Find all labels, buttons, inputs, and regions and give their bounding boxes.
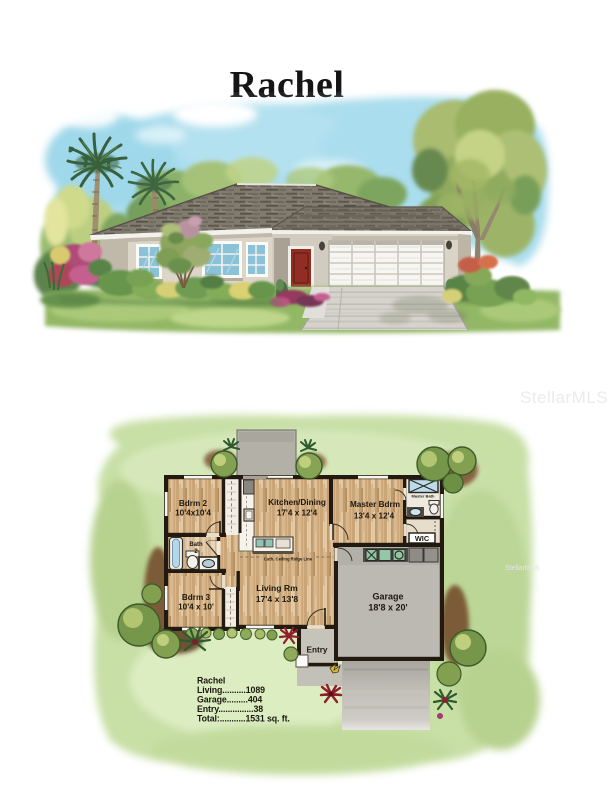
- svg-text:Entry...............38: Entry...............38: [197, 704, 263, 714]
- svg-text:Master Bath: Master Bath: [412, 494, 435, 499]
- svg-text:StellarMLS: StellarMLS: [520, 388, 608, 407]
- svg-text:Master Bdrm: Master Bdrm: [350, 500, 400, 509]
- svg-text:Living..........1089: Living..........1089: [197, 685, 265, 695]
- svg-text:10'4x10'4: 10'4x10'4: [175, 509, 211, 518]
- svg-text:Total:...........1531 sq. ft.: Total:...........1531 sq. ft.: [197, 714, 290, 724]
- svg-text:Bdrm 2: Bdrm 2: [179, 499, 208, 508]
- svg-text:17'4 x 12'4: 17'4 x 12'4: [277, 509, 318, 518]
- svg-text:17'4 x 13'8: 17'4 x 13'8: [256, 594, 299, 604]
- svg-text:Cath. Ceiling Ridge Line: Cath. Ceiling Ridge Line: [264, 557, 313, 562]
- svg-text:Entry: Entry: [307, 646, 328, 655]
- svg-text:Garage: Garage: [372, 592, 403, 602]
- svg-text:18'8 x 20': 18'8 x 20': [368, 603, 407, 613]
- svg-text:Bdrm 3: Bdrm 3: [182, 593, 211, 602]
- svg-text:Bath: Bath: [189, 542, 203, 548]
- svg-text:10'4 x 10': 10'4 x 10': [178, 603, 214, 612]
- svg-text:Kitchen/Dining: Kitchen/Dining: [268, 498, 326, 507]
- svg-text:13'4 x 12'4: 13'4 x 12'4: [354, 512, 395, 521]
- svg-text:StellarMLS: StellarMLS: [505, 565, 540, 572]
- svg-text:WIC: WIC: [415, 534, 430, 543]
- svg-text:Rachel: Rachel: [197, 676, 225, 686]
- svg-text:Living Rm: Living Rm: [256, 583, 298, 593]
- svg-text:Garage.........404: Garage.........404: [197, 695, 262, 705]
